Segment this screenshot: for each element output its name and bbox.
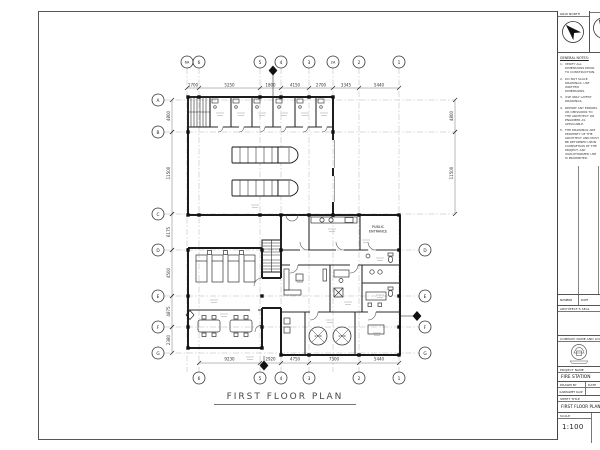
title-block: GRID NORTH GENERAL NOTES: 1.VERIFY ALL D… xyxy=(557,11,600,440)
dimension-label: 6175 xyxy=(166,226,171,237)
grid-bubble-label: C xyxy=(156,212,159,218)
general-notes: GENERAL NOTES: 1.VERIFY ALL DIMENSIONS P… xyxy=(558,53,600,295)
column-marker xyxy=(186,248,189,251)
column-marker xyxy=(258,95,261,98)
general-notes-list: 1.VERIFY ALL DIMENSIONS PRIOR TO CONSTRU… xyxy=(558,62,600,160)
sheet-title-value: FIRST FLOOR PLAN xyxy=(558,402,600,409)
grid-bubble-label: 4 xyxy=(280,60,283,66)
scale-extra-cell xyxy=(592,413,600,443)
column-marker xyxy=(279,248,282,251)
dimension-label: 11500 xyxy=(449,166,454,179)
grid-bubble-label: B xyxy=(157,130,160,136)
column-marker xyxy=(307,353,310,356)
drawing-sheet: 1700525018004150270033455440923029204750… xyxy=(0,0,600,450)
dimension-label: 1800 xyxy=(265,82,276,87)
scale-cell: SCALE 1:100 xyxy=(558,413,600,443)
bay-room-doors xyxy=(218,127,327,132)
dimension-label: 1700 xyxy=(188,82,199,87)
column-marker xyxy=(331,95,334,98)
section-markers xyxy=(186,66,421,370)
column-marker xyxy=(279,95,282,98)
dimension-label: 5440 xyxy=(374,356,385,361)
tank-label: 1700 xyxy=(314,334,322,338)
column-marker xyxy=(307,213,310,216)
grid-bubble-label: 3 xyxy=(308,60,311,66)
column-marker xyxy=(260,325,263,328)
dimension-label: 4800 xyxy=(166,110,171,121)
column-markers xyxy=(186,95,400,356)
grid-bubble-label: 4 xyxy=(280,376,283,382)
column-marker xyxy=(186,346,189,349)
dimension-label: 4150 xyxy=(290,82,301,87)
revision-header: NUMBER DATE xyxy=(558,295,600,306)
column-marker xyxy=(307,95,310,98)
grid-bubble-label: 5 xyxy=(259,60,262,66)
dimension-label: 5440 xyxy=(374,82,385,87)
dimension-label: 2920 xyxy=(265,356,276,361)
dimension-label: 5250 xyxy=(224,82,235,87)
grid-bubble-label: 2 xyxy=(358,376,361,382)
column-marker xyxy=(260,294,263,297)
general-notes-title: GENERAL NOTES: xyxy=(558,53,600,62)
revision-column-line xyxy=(578,166,579,294)
grid-bubble-label: E xyxy=(157,294,160,300)
room-label: PUBLIC xyxy=(372,225,385,229)
grid-bubble-label: 6 xyxy=(198,60,201,66)
office-furniture xyxy=(334,270,386,307)
core-stair xyxy=(262,240,281,272)
general-note: 2.DO NOT SCALE DRAWINGS, USE WRITTEN DIM… xyxy=(560,77,599,93)
dimension-label: 4800 xyxy=(449,110,454,121)
column-marker xyxy=(260,346,263,349)
column-marker xyxy=(186,294,189,297)
tank-label: 1700 xyxy=(338,334,346,338)
column-marker xyxy=(397,294,400,297)
revision-date-label: DATE xyxy=(579,298,588,302)
project-name-value: FIRE STATION xyxy=(558,373,600,380)
column-marker xyxy=(279,353,282,356)
drawn-by-value: KARPAWET KAIP xyxy=(558,388,585,394)
architects-seal-cell: ARCHITECT'S SEAL xyxy=(558,306,600,336)
grid-bubble-label: 2A xyxy=(331,60,336,64)
revision-column-line xyxy=(598,166,599,294)
fire-truck-2 xyxy=(232,180,298,196)
grid-north-icon xyxy=(558,17,588,47)
grid-bubble-label: 6 xyxy=(198,376,201,382)
column-marker xyxy=(357,353,360,356)
grid-bubble-label: 1 xyxy=(398,376,401,382)
column-marker xyxy=(260,248,263,251)
column-marker xyxy=(186,95,189,98)
dimension-label: 2700 xyxy=(316,82,327,87)
column-marker xyxy=(397,248,400,251)
grid-bubble-label: 6A xyxy=(185,60,190,64)
dimension-label: 3345 xyxy=(341,82,352,87)
grid-bubble-label: G xyxy=(156,351,159,357)
column-marker xyxy=(186,325,189,328)
column-marker xyxy=(197,213,200,216)
dimension-label: 4500 xyxy=(166,267,171,278)
company-logo xyxy=(558,342,600,366)
grid-bubble-label: E xyxy=(424,294,427,300)
column-marker xyxy=(357,213,360,216)
dining-tables xyxy=(198,316,252,337)
bay-room-fixtures xyxy=(212,99,324,108)
scale-value: 1:100 xyxy=(558,419,591,431)
fire-truck-1 xyxy=(232,147,298,163)
general-note: 1.VERIFY ALL DIMENSIONS PRIOR TO CONSTRU… xyxy=(560,62,599,74)
grid-bubble-label: 2 xyxy=(358,60,361,66)
column-marker xyxy=(397,325,400,328)
room-labels: PUBLICENTRANCE17001700 xyxy=(314,225,387,338)
dimension-label: 2380 xyxy=(166,334,171,345)
true-north-cell xyxy=(589,11,600,52)
kitchen-fixtures xyxy=(311,217,357,223)
drawn-by-cell: DRAWN BY KARPAWET KAIP DATE xyxy=(558,382,600,396)
grid-bubble-label: A xyxy=(157,98,160,104)
architects-seal-label: ARCHITECT'S SEAL xyxy=(558,306,600,312)
general-note: 3.USE ONLY LATEST DRAWINGS. xyxy=(560,95,599,103)
dimension-label: 7300 xyxy=(329,356,340,361)
column-marker xyxy=(397,213,400,216)
company-cell: COMPANY NAME AND LOGO xyxy=(558,336,600,367)
floor-plan: 1700525018004150270033455440923029204750… xyxy=(0,0,600,450)
column-marker xyxy=(186,130,189,133)
general-note: 5.THE DRAWINGS ARE PROPERTY OF THE ARCHI… xyxy=(560,128,599,160)
revision-number-label: NUMBER xyxy=(558,295,579,305)
grid-bubble-label: 1 xyxy=(398,60,401,66)
grid-bubble-label: G xyxy=(423,351,426,357)
column-marker xyxy=(186,213,189,216)
project-name-cell: PROJECT NAME FIRE STATION xyxy=(558,367,600,382)
dormitory-beds xyxy=(196,251,255,283)
sheet-title-cell: SHEET TITLE FIRST FLOOR PLAN xyxy=(558,396,600,413)
general-note: 4.REPORT ANY ERRORS OR OMISSIONS TO THE … xyxy=(560,106,599,126)
grid-bubble-label: 5 xyxy=(259,376,262,382)
dimension-label: 11500 xyxy=(166,166,171,179)
grid-bubble-label: 3 xyxy=(308,376,311,382)
column-marker xyxy=(331,130,334,133)
dimension-label: 9230 xyxy=(224,356,235,361)
north-arrows: GRID NORTH xyxy=(558,11,600,53)
dimension-label: 4875 xyxy=(166,306,171,317)
drawn-date-label: DATE xyxy=(586,382,600,388)
interior-doors xyxy=(254,215,376,332)
column-marker xyxy=(258,213,261,216)
plan-title: FIRST FLOOR PLAN xyxy=(214,392,356,405)
column-marker xyxy=(331,213,334,216)
column-marker xyxy=(279,213,282,216)
column-marker xyxy=(397,353,400,356)
true-north-icon xyxy=(590,13,600,43)
grid-north-cell: GRID NORTH xyxy=(558,11,589,52)
dimension-label: 4750 xyxy=(290,356,301,361)
column-marker xyxy=(197,95,200,98)
room-label: ENTRANCE xyxy=(369,230,387,234)
